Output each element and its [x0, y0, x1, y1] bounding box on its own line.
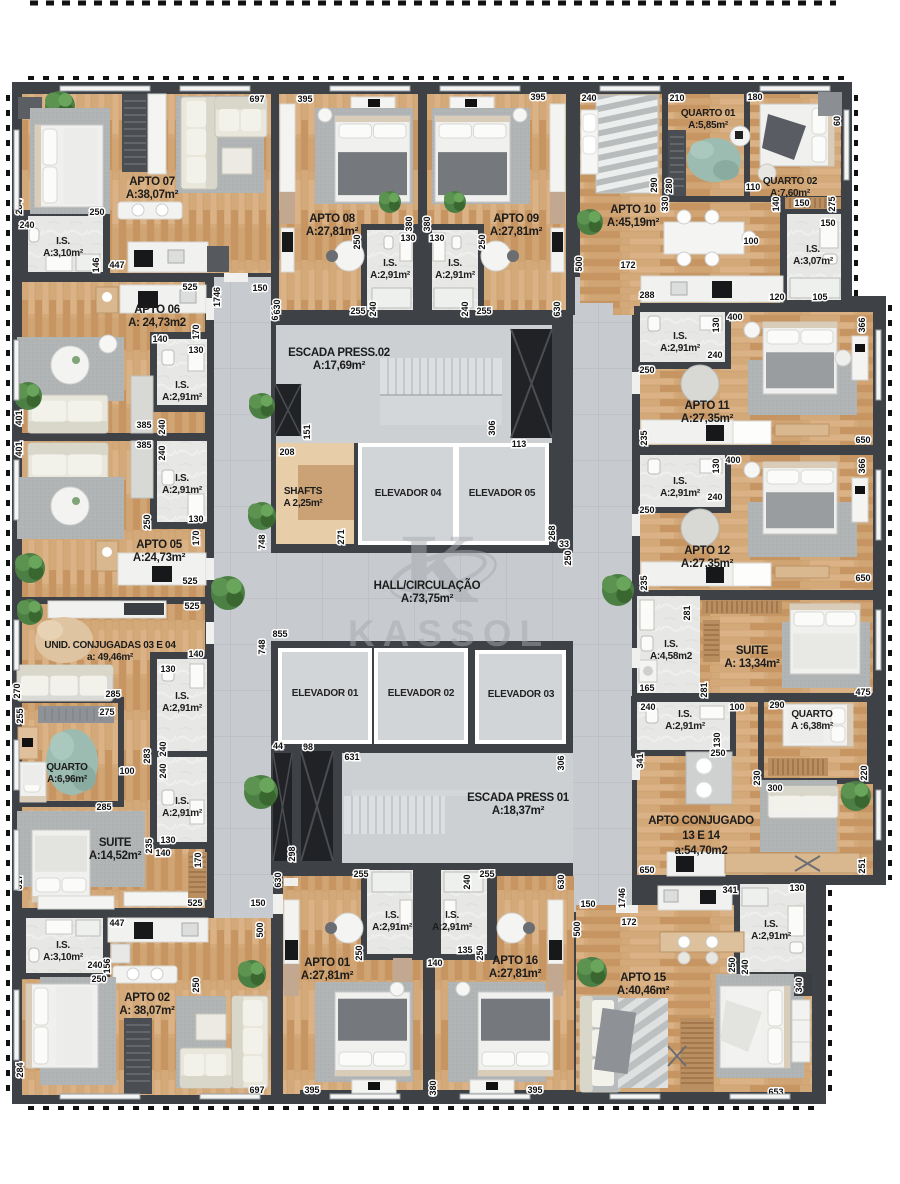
svg-text:130: 130	[160, 664, 175, 674]
svg-text:ESCADA PRESS 01: ESCADA PRESS 01	[467, 792, 570, 804]
svg-text:A:27,81m²: A:27,81m²	[301, 970, 354, 982]
svg-text:APTO 05: APTO 05	[136, 539, 183, 551]
svg-text:250: 250	[89, 207, 104, 217]
svg-text:I.S.: I.S.	[448, 258, 462, 269]
svg-text:630: 630	[556, 874, 566, 889]
svg-text:A:3,10m²: A:3,10m²	[43, 952, 84, 963]
svg-text:240: 240	[87, 960, 102, 970]
svg-text:150: 150	[580, 899, 595, 909]
svg-text:250: 250	[710, 748, 725, 758]
svg-text:240: 240	[707, 492, 722, 502]
svg-text:280: 280	[664, 178, 674, 193]
svg-text:250: 250	[639, 365, 654, 375]
svg-text:250: 250	[727, 957, 737, 972]
svg-text:285: 285	[105, 689, 120, 699]
svg-text:240: 240	[462, 874, 472, 889]
svg-text:366: 366	[857, 458, 867, 473]
svg-text:395: 395	[530, 92, 545, 102]
svg-text:172: 172	[621, 917, 636, 927]
svg-text:650: 650	[639, 865, 654, 875]
svg-text:A: 13,34m²: A: 13,34m²	[724, 658, 780, 670]
svg-text:210: 210	[669, 93, 684, 103]
svg-text:A :6,38m²: A :6,38m²	[791, 721, 834, 732]
svg-text:I.S.: I.S.	[664, 639, 678, 650]
svg-text:ELEVADOR 02: ELEVADOR 02	[388, 688, 455, 699]
svg-text:A:73,75m²: A:73,75m²	[401, 593, 454, 605]
svg-text:A:2,91m²: A:2,91m²	[751, 931, 792, 942]
svg-text:A:40,46m²: A:40,46m²	[617, 985, 670, 997]
svg-text:A:27,35m²: A:27,35m²	[681, 413, 734, 425]
svg-text:250: 250	[354, 945, 364, 960]
svg-text:A:18,37m²: A:18,37m²	[492, 805, 545, 817]
svg-text:748: 748	[257, 534, 267, 549]
svg-text:13 E 14: 13 E 14	[682, 830, 720, 842]
svg-text:A:14,52m²: A:14,52m²	[89, 850, 142, 862]
svg-text:140: 140	[771, 196, 781, 211]
svg-text:156: 156	[102, 958, 112, 973]
svg-text:250: 250	[91, 974, 106, 984]
svg-text:QUARTO 01: QUARTO 01	[681, 108, 736, 119]
svg-text:170: 170	[193, 852, 203, 867]
svg-text:306: 306	[556, 755, 566, 770]
svg-text:250: 250	[475, 945, 485, 960]
svg-text:110: 110	[746, 182, 761, 192]
svg-text:150: 150	[820, 218, 835, 228]
svg-text:140: 140	[152, 334, 167, 344]
svg-text:140: 140	[188, 649, 203, 659]
svg-text:748: 748	[257, 639, 267, 654]
svg-text:SHAFTS: SHAFTS	[284, 486, 323, 497]
svg-text:300: 300	[767, 783, 782, 793]
svg-text:SUITE: SUITE	[736, 645, 769, 657]
svg-text:240: 240	[460, 301, 470, 316]
svg-text:281: 281	[682, 605, 692, 620]
svg-text:385: 385	[136, 440, 151, 450]
svg-text:170: 170	[191, 324, 201, 339]
svg-text:I.S.: I.S.	[673, 331, 687, 342]
svg-text:255: 255	[476, 306, 491, 316]
svg-text:146: 146	[91, 257, 101, 272]
svg-text:APTO 12: APTO 12	[684, 545, 730, 557]
svg-text:288: 288	[639, 290, 654, 300]
svg-text:275: 275	[827, 196, 837, 211]
svg-text:ELEVADOR 01: ELEVADOR 01	[292, 688, 359, 699]
svg-text:A:27,81m²: A:27,81m²	[490, 226, 543, 238]
svg-text:A:2,91m²: A:2,91m²	[372, 922, 413, 933]
svg-text:I.S.: I.S.	[56, 940, 70, 951]
svg-text:130: 130	[789, 883, 804, 893]
svg-text:275: 275	[99, 707, 114, 717]
svg-text:I.S.: I.S.	[383, 258, 397, 269]
svg-text:HALL/CIRCULAÇÃO: HALL/CIRCULAÇÃO	[374, 579, 481, 592]
svg-text:240: 240	[19, 220, 34, 230]
svg-text:170: 170	[191, 530, 201, 545]
svg-text:255: 255	[479, 869, 494, 879]
svg-text:230: 230	[752, 770, 762, 785]
svg-text:208: 208	[279, 447, 294, 457]
svg-text:401: 401	[14, 410, 24, 425]
svg-text:APTO CONJUGADO: APTO CONJUGADO	[648, 815, 754, 827]
svg-text:340: 340	[794, 977, 804, 992]
svg-text:220: 220	[859, 765, 869, 780]
svg-text:A: 24,73m2: A: 24,73m2	[128, 317, 186, 329]
svg-text:250: 250	[563, 550, 573, 565]
svg-text:366: 366	[857, 317, 867, 332]
svg-text:I.S.: I.S.	[385, 910, 399, 921]
svg-text:240: 240	[368, 301, 378, 316]
svg-text:290: 290	[649, 177, 659, 192]
svg-text:341: 341	[635, 753, 645, 768]
svg-text:ELEVADOR 05: ELEVADOR 05	[469, 488, 536, 499]
svg-text:I.S.: I.S.	[678, 709, 692, 720]
svg-text:A:38,07m²: A:38,07m²	[126, 189, 179, 201]
svg-text:447: 447	[109, 918, 124, 928]
svg-text:A:3,10m²: A:3,10m²	[43, 248, 84, 259]
svg-text:A:2,91m²: A:2,91m²	[665, 721, 706, 732]
svg-text:A:2,91m²: A:2,91m²	[162, 485, 203, 496]
svg-text:KASSOL: KASSOL	[348, 613, 550, 654]
svg-text:SUITE: SUITE	[99, 837, 132, 849]
svg-text:A 2,25m²: A 2,25m²	[284, 498, 324, 509]
svg-text:A:2,91m²: A:2,91m²	[435, 270, 476, 281]
svg-text:APTO 11: APTO 11	[685, 400, 731, 412]
svg-text:475: 475	[855, 687, 870, 697]
svg-text:ELEVADOR 04: ELEVADOR 04	[375, 488, 442, 499]
svg-text:165: 165	[639, 683, 654, 693]
svg-text:400: 400	[725, 455, 740, 465]
svg-text:APTO 08: APTO 08	[309, 213, 356, 225]
svg-text:A:2,91m²: A:2,91m²	[432, 922, 473, 933]
svg-text:130: 130	[712, 732, 722, 747]
svg-text:250: 250	[477, 234, 487, 249]
svg-text:a: 49,46m²: a: 49,46m²	[87, 652, 134, 663]
svg-text:135: 135	[457, 945, 472, 955]
svg-text:130: 130	[188, 345, 203, 355]
svg-text:98: 98	[303, 742, 313, 752]
svg-text:270: 270	[12, 683, 22, 698]
svg-text:400: 400	[727, 312, 742, 322]
svg-text:130: 130	[400, 233, 415, 243]
svg-text:395: 395	[297, 94, 312, 104]
svg-text:A:2,91m²: A:2,91m²	[660, 488, 701, 499]
svg-text:I.S.: I.S.	[175, 796, 189, 807]
svg-text:500: 500	[574, 256, 584, 271]
svg-text:140: 140	[155, 848, 170, 858]
svg-text:240: 240	[158, 741, 168, 756]
svg-text:QUARTO: QUARTO	[46, 762, 88, 773]
svg-text:I.S.: I.S.	[806, 244, 820, 255]
svg-text:A:2,91m²: A:2,91m²	[162, 808, 203, 819]
svg-text:a:54,70m2: a:54,70m2	[675, 845, 728, 857]
svg-text:500: 500	[255, 922, 265, 937]
svg-text:150: 150	[794, 198, 809, 208]
svg-text:ELEVADOR 03: ELEVADOR 03	[488, 689, 555, 700]
svg-text:I.S.: I.S.	[445, 910, 459, 921]
svg-text:100: 100	[743, 236, 758, 246]
svg-text:395: 395	[304, 1085, 319, 1095]
svg-text:100: 100	[729, 702, 744, 712]
svg-text:ESCADA PRESS.02: ESCADA PRESS.02	[288, 347, 390, 359]
svg-text:I.S.: I.S.	[764, 919, 778, 930]
svg-text:A:27,81m²: A:27,81m²	[306, 226, 359, 238]
svg-text:A:27,35m²: A:27,35m²	[681, 558, 734, 570]
svg-text:UNID. CONJUGADAS 03 E 04: UNID. CONJUGADAS 03 E 04	[44, 640, 176, 651]
svg-text:172: 172	[620, 260, 635, 270]
svg-text:A: 38,07m²: A: 38,07m²	[119, 1005, 175, 1017]
svg-text:250: 250	[142, 514, 152, 529]
svg-text:QUARTO: QUARTO	[791, 709, 833, 720]
svg-text:285: 285	[96, 802, 111, 812]
svg-text:255: 255	[350, 306, 365, 316]
svg-text:130: 130	[160, 835, 175, 845]
svg-text:A:24,73m²: A:24,73m²	[133, 552, 186, 564]
svg-text:240: 240	[581, 93, 596, 103]
svg-text:380: 380	[428, 1080, 438, 1095]
svg-text:180: 180	[747, 92, 762, 102]
svg-text:855: 855	[272, 629, 287, 639]
svg-text:140: 140	[427, 958, 442, 968]
svg-text:306: 306	[487, 420, 497, 435]
svg-text:283: 283	[142, 748, 152, 763]
svg-text:I.S.: I.S.	[175, 691, 189, 702]
svg-text:525: 525	[182, 576, 197, 586]
svg-text:250: 250	[191, 977, 201, 992]
svg-text:APTO 01: APTO 01	[304, 957, 351, 969]
svg-text:240: 240	[707, 350, 722, 360]
svg-text:255: 255	[353, 869, 368, 879]
svg-text:APTO 07: APTO 07	[129, 176, 175, 188]
svg-text:130: 130	[188, 514, 203, 524]
svg-text:I.S.: I.S.	[175, 380, 189, 391]
svg-text:1746: 1746	[212, 287, 222, 307]
svg-text:A:2,91m²: A:2,91m²	[370, 270, 411, 281]
svg-text:341: 341	[722, 885, 737, 895]
svg-text:284: 284	[15, 1062, 25, 1077]
svg-text:1746: 1746	[617, 888, 627, 908]
svg-text:385: 385	[136, 420, 151, 430]
svg-text:250: 250	[639, 505, 654, 515]
svg-text:120: 120	[769, 292, 784, 302]
svg-text:500: 500	[572, 921, 582, 936]
svg-text:150: 150	[250, 898, 265, 908]
svg-text:271: 271	[336, 529, 346, 544]
svg-text:100: 100	[119, 766, 134, 776]
svg-text:K: K	[401, 513, 479, 624]
svg-text:44: 44	[273, 741, 283, 751]
svg-text:697: 697	[249, 94, 264, 104]
svg-text:630: 630	[273, 872, 283, 887]
svg-text:401: 401	[14, 441, 24, 456]
svg-text:240: 240	[157, 445, 167, 460]
svg-text:APTO 06: APTO 06	[134, 304, 180, 316]
svg-text:QUARTO 02: QUARTO 02	[763, 176, 818, 187]
svg-text:33: 33	[559, 539, 569, 549]
svg-text:268: 268	[547, 525, 557, 540]
svg-text:525: 525	[187, 898, 202, 908]
svg-text:113: 113	[512, 439, 527, 449]
svg-text:A:27,81m²: A:27,81m²	[489, 968, 542, 980]
svg-text:240: 240	[158, 763, 168, 778]
svg-text:I.S.: I.S.	[673, 476, 687, 487]
svg-text:380: 380	[422, 216, 432, 231]
svg-text:151: 151	[302, 424, 312, 439]
svg-text:380: 380	[404, 216, 414, 231]
svg-text:I.S.: I.S.	[56, 236, 70, 247]
svg-text:240: 240	[157, 419, 167, 434]
svg-text:630: 630	[552, 301, 562, 316]
svg-text:447: 447	[109, 260, 124, 270]
svg-text:250: 250	[352, 234, 362, 249]
svg-text:A:6,96m²: A:6,96m²	[47, 774, 88, 785]
svg-text:240: 240	[640, 702, 655, 712]
svg-text:A:45,19m²: A:45,19m²	[607, 217, 660, 229]
svg-text:APTO 09: APTO 09	[493, 213, 539, 225]
svg-text:60: 60	[832, 116, 842, 126]
svg-text:APTO 10: APTO 10	[610, 204, 656, 216]
svg-text:130: 130	[429, 233, 444, 243]
svg-text:A:4,58m2: A:4,58m2	[650, 651, 693, 662]
svg-text:290: 290	[769, 700, 784, 710]
svg-text:105: 105	[812, 292, 827, 302]
svg-text:A:2,91m²: A:2,91m²	[162, 392, 203, 403]
svg-text:281: 281	[699, 682, 709, 697]
svg-text:A:5,85m²: A:5,85m²	[688, 120, 729, 131]
svg-text:A:17,69m²: A:17,69m²	[313, 360, 366, 372]
svg-text:240: 240	[740, 959, 750, 974]
svg-text:251: 251	[857, 858, 867, 873]
svg-text:130: 130	[711, 317, 721, 332]
svg-text:I.S.: I.S.	[175, 473, 189, 484]
svg-text:298: 298	[287, 846, 297, 861]
svg-text:235: 235	[639, 430, 649, 445]
svg-text:650: 650	[855, 573, 870, 583]
svg-text:150: 150	[252, 283, 267, 293]
svg-text:A:2,91m²: A:2,91m²	[660, 343, 701, 354]
svg-text:235: 235	[639, 575, 649, 590]
svg-text:APTO 15: APTO 15	[620, 972, 667, 984]
svg-text:235: 235	[144, 838, 154, 853]
svg-text:APTO 02: APTO 02	[124, 992, 170, 1004]
svg-text:631: 631	[344, 752, 359, 762]
svg-text:A:3,07m²: A:3,07m²	[793, 256, 834, 267]
svg-text:630: 630	[272, 299, 282, 314]
svg-text:525: 525	[182, 282, 197, 292]
svg-text:650: 650	[855, 435, 870, 445]
svg-text:A:2,91m²: A:2,91m²	[162, 703, 203, 714]
svg-text:130: 130	[711, 458, 721, 473]
svg-text:525: 525	[184, 601, 199, 611]
svg-text:255: 255	[15, 708, 25, 723]
svg-text:APTO 16: APTO 16	[492, 955, 538, 967]
svg-text:330: 330	[660, 196, 670, 211]
